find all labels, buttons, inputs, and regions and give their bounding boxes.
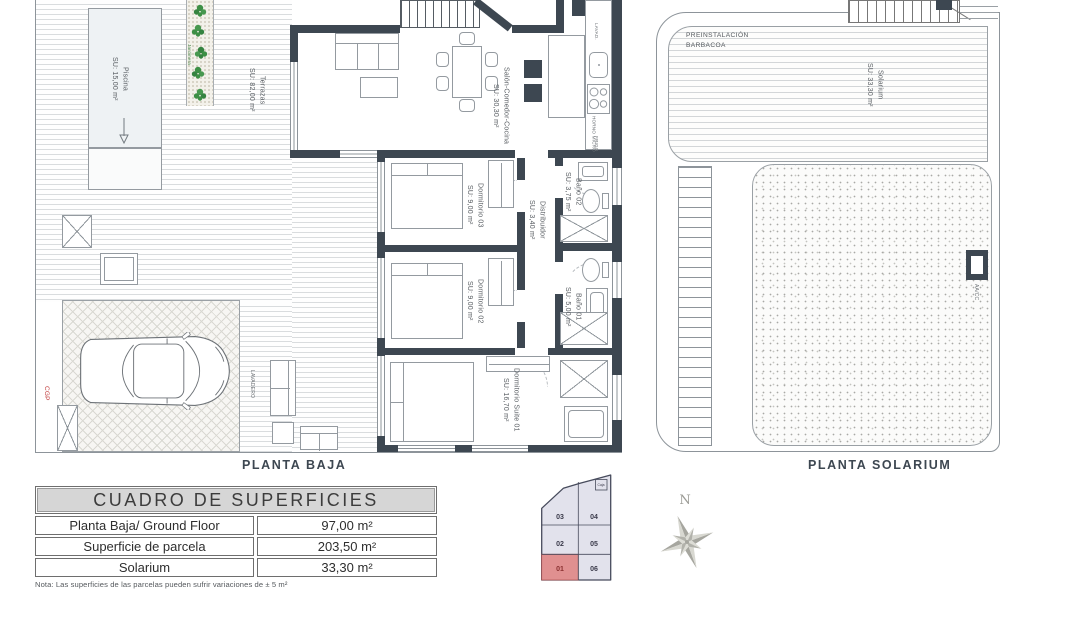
sofa: [335, 33, 399, 70]
pool-label: Piscina SU: 15,00 m²: [109, 34, 129, 124]
entry-stairs: [400, 0, 480, 28]
solarium-plan: PREINSTALACIÓN BARBACOA Solarium SU: 33,…: [640, 0, 1070, 480]
shower: [560, 215, 608, 242]
car-top-view: [76, 332, 234, 410]
north-label: N: [679, 493, 690, 508]
living-room-label: Salón-Comedor-Cocina SU: 30,30 m²: [490, 64, 510, 148]
stair-ladder: [678, 166, 712, 446]
washbasin: [578, 162, 608, 181]
wall-segment: [555, 158, 563, 166]
window: [377, 356, 385, 436]
utility-box-label: Caja: [598, 483, 605, 487]
ac-label: AA/CC: [973, 284, 979, 300]
dining-table: [452, 46, 482, 98]
plan-sheet: Piscina SU: 15,00 m² Jardinera Terrazas …: [0, 0, 1070, 620]
washbasin: [564, 406, 608, 442]
bed: [391, 263, 463, 339]
wall-segment: [290, 150, 515, 158]
plant-icon: [193, 46, 209, 60]
planter-label: Jardinera: [187, 44, 192, 65]
lot-label: 04: [590, 514, 598, 521]
wall-segment: [385, 348, 515, 355]
wall-segment: [517, 212, 525, 290]
bed: [390, 362, 474, 442]
plot-boundary: [35, 0, 36, 452]
plant-icon: [192, 88, 208, 102]
window: [612, 262, 622, 298]
bar-stool: [524, 84, 542, 102]
row-value: 33,30 m²: [257, 558, 437, 577]
row-label: Planta Baja/ Ground Floor: [35, 516, 254, 535]
toilet: [582, 189, 600, 213]
roof-area: [752, 164, 992, 446]
kitchen-sink: [589, 52, 608, 78]
window: [340, 150, 377, 158]
bed: [391, 163, 463, 229]
bathroom1-label: Baño 01 SU: 5,00 m²: [562, 278, 582, 336]
bedroom2-label: Dormitorio 02 SU: 9,00 m²: [464, 268, 484, 334]
window: [472, 445, 528, 452]
service-box: [62, 215, 92, 248]
table-row: Superficie de parcela 203,50 m²: [35, 537, 437, 556]
lot-label: 03: [556, 514, 564, 521]
wall-segment: [512, 25, 556, 33]
plant-icon: [192, 4, 208, 18]
window: [612, 375, 622, 420]
wall-segment: [517, 322, 525, 348]
wall-segment: [556, 0, 564, 33]
wardrobe: [488, 258, 514, 306]
dining-chair: [459, 32, 475, 45]
kitchen-hob: [587, 84, 610, 114]
ac-unit: [966, 250, 988, 280]
wall-segment: [517, 158, 525, 180]
toilet-tank: [602, 193, 609, 209]
wall-segment: [290, 25, 400, 33]
outdoor-sofa: [270, 360, 296, 416]
window: [377, 162, 385, 232]
row-label: Superficie de parcela: [35, 537, 254, 556]
outdoor-sofa: [300, 426, 338, 450]
window: [612, 168, 622, 205]
site-key-plan: Caja 03 04 02 05 01 06: [538, 473, 648, 595]
service-box: [100, 253, 138, 285]
solarium-title: PLANTA SOLARIUM: [808, 458, 951, 472]
areas-table-note: Nota: Las superficies de las parcelas pu…: [35, 580, 437, 589]
compass-rose: N: [648, 490, 726, 580]
plot-boundary: [35, 452, 622, 453]
plant-icon: [190, 24, 206, 38]
barbecue-label: PREINSTALACIÓN BARBACOA: [686, 31, 749, 51]
hallway-label: Distribuidor SU: 3,40 m²: [526, 190, 546, 250]
terrace-deck: [292, 158, 379, 452]
bathroom2-label: Baño 02 SU: 3,75 m²: [562, 166, 582, 218]
table-row: Planta Baja/ Ground Floor 97,00 m²: [35, 516, 437, 535]
wall-segment: [555, 243, 612, 251]
pool-arrow: [118, 118, 130, 144]
fridge-label: FRIGO: [594, 136, 599, 152]
outdoor-table: [272, 422, 294, 444]
dining-chair: [436, 76, 449, 91]
table-row: Solarium 33,30 m²: [35, 558, 437, 577]
window: [290, 62, 298, 152]
bar-stool: [524, 60, 542, 78]
wall-segment: [548, 150, 622, 158]
row-value: 97,00 m²: [257, 516, 437, 535]
wall-segment: [385, 245, 520, 252]
plant-icon: [190, 66, 206, 80]
wardrobe: [488, 160, 514, 208]
toilet: [582, 258, 600, 282]
terrace-label: Terrazas SU: 82,00 m²: [246, 52, 266, 128]
suite-label: Dormitorio Suite 01 SU: 16,70 m²: [500, 358, 520, 442]
dishwasher-label: LAVAD.: [594, 23, 599, 40]
areas-table-title: CUADRO DE SUPERFICIES: [35, 486, 437, 514]
pool-ramp: [88, 148, 162, 190]
window: [398, 445, 455, 452]
kitchen-peninsula: [548, 35, 585, 118]
lot-label: 06: [590, 566, 598, 573]
window: [377, 258, 385, 338]
ground-floor-title: PLANTA BAJA: [242, 458, 346, 472]
lot-label: 02: [556, 541, 564, 548]
areas-table: CUADRO DE SUPERFICIES Planta Baja/ Groun…: [35, 486, 437, 589]
bedroom3-label: Dormitorio 03 SU: 9,00 m²: [464, 172, 484, 238]
wall-segment: [548, 348, 612, 355]
shower: [560, 360, 608, 398]
lot-label-highlighted: 01: [556, 566, 564, 573]
row-label: Solarium: [35, 558, 254, 577]
solarium-label: Solarium SU: 33,30 m²: [864, 54, 884, 116]
chimney: [936, 0, 952, 10]
dining-chair: [436, 52, 449, 67]
cgp-label: CGP: [43, 386, 50, 401]
cgp-box: [57, 405, 78, 451]
ground-floor-plan: Piscina SU: 15,00 m² Jardinera Terrazas …: [0, 0, 640, 480]
terrace-deck: [35, 0, 292, 302]
roof-edge-lines: [960, 6, 998, 22]
row-value: 203,50 m²: [257, 537, 437, 556]
laundry-label: LAVADERO: [249, 370, 255, 398]
toilet-tank: [602, 262, 609, 278]
dining-chair: [459, 99, 475, 112]
coffee-table: [360, 77, 398, 98]
lot-label: 05: [590, 541, 598, 548]
